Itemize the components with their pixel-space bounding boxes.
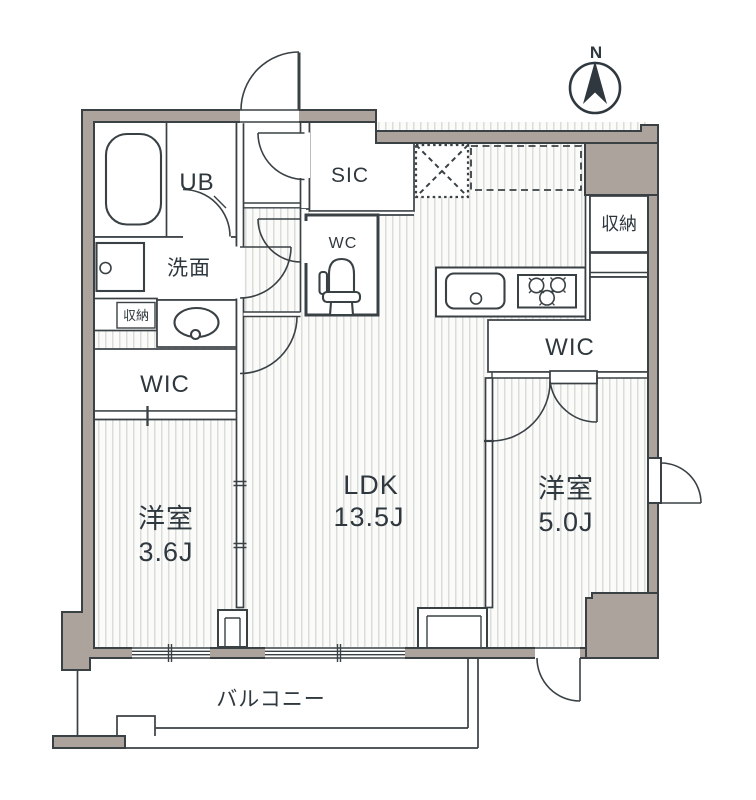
room-label-balcony: バルコニー bbox=[216, 688, 326, 711]
room-label-unit-bath: UB bbox=[179, 169, 214, 196]
room-size-ldk: 13.5J bbox=[333, 502, 404, 532]
room-size-bedroom-large: 5.0J bbox=[538, 507, 593, 537]
room-label-ldk: LDK bbox=[343, 470, 399, 500]
pillar-left bbox=[218, 610, 247, 647]
room-label-storage-small: 収納 bbox=[123, 308, 149, 323]
side-door bbox=[647, 458, 701, 503]
wall-block-bottomright bbox=[586, 593, 658, 658]
room-label-bedroom-small: 洋室 bbox=[138, 504, 194, 534]
wall-corridor-left bbox=[237, 122, 244, 608]
wic-right-doorway bbox=[550, 371, 597, 384]
compass-icon bbox=[570, 61, 620, 113]
bathtub-icon bbox=[106, 134, 161, 225]
pillar-right bbox=[418, 608, 487, 648]
wall-bedroom-right bbox=[486, 378, 493, 608]
wall-h4 bbox=[94, 412, 237, 419]
room-label-washroom: 洗面 bbox=[167, 257, 211, 280]
washer-pan-icon bbox=[97, 243, 145, 291]
balcony-door bbox=[535, 647, 580, 701]
basin-drain-icon bbox=[191, 330, 200, 339]
room-label-sic: SIC bbox=[331, 164, 369, 187]
room-label-bedroom-large: 洋室 bbox=[538, 474, 594, 504]
room-label-wic-left: WIC bbox=[140, 371, 190, 398]
room-label-wc: WC bbox=[329, 235, 358, 252]
wall-block-topright bbox=[585, 143, 658, 195]
room-label-wic-right: WIC bbox=[545, 334, 595, 361]
entrance-hall bbox=[244, 122, 301, 203]
north-label: N bbox=[590, 43, 602, 62]
room-label-storage-right: 収納 bbox=[601, 214, 637, 234]
entrance-door bbox=[240, 52, 299, 123]
floor-plan: N UB 洗面 収納 WIC SIC WC 収納 WIC 洋室 3.6J LDK… bbox=[0, 0, 756, 800]
shelf-box bbox=[590, 253, 648, 277]
floor-plan-svg: N UB 洗面 収納 WIC SIC WC 収納 WIC 洋室 3.6J LDK… bbox=[0, 0, 756, 800]
room-size-bedroom-small: 3.6J bbox=[138, 537, 193, 567]
